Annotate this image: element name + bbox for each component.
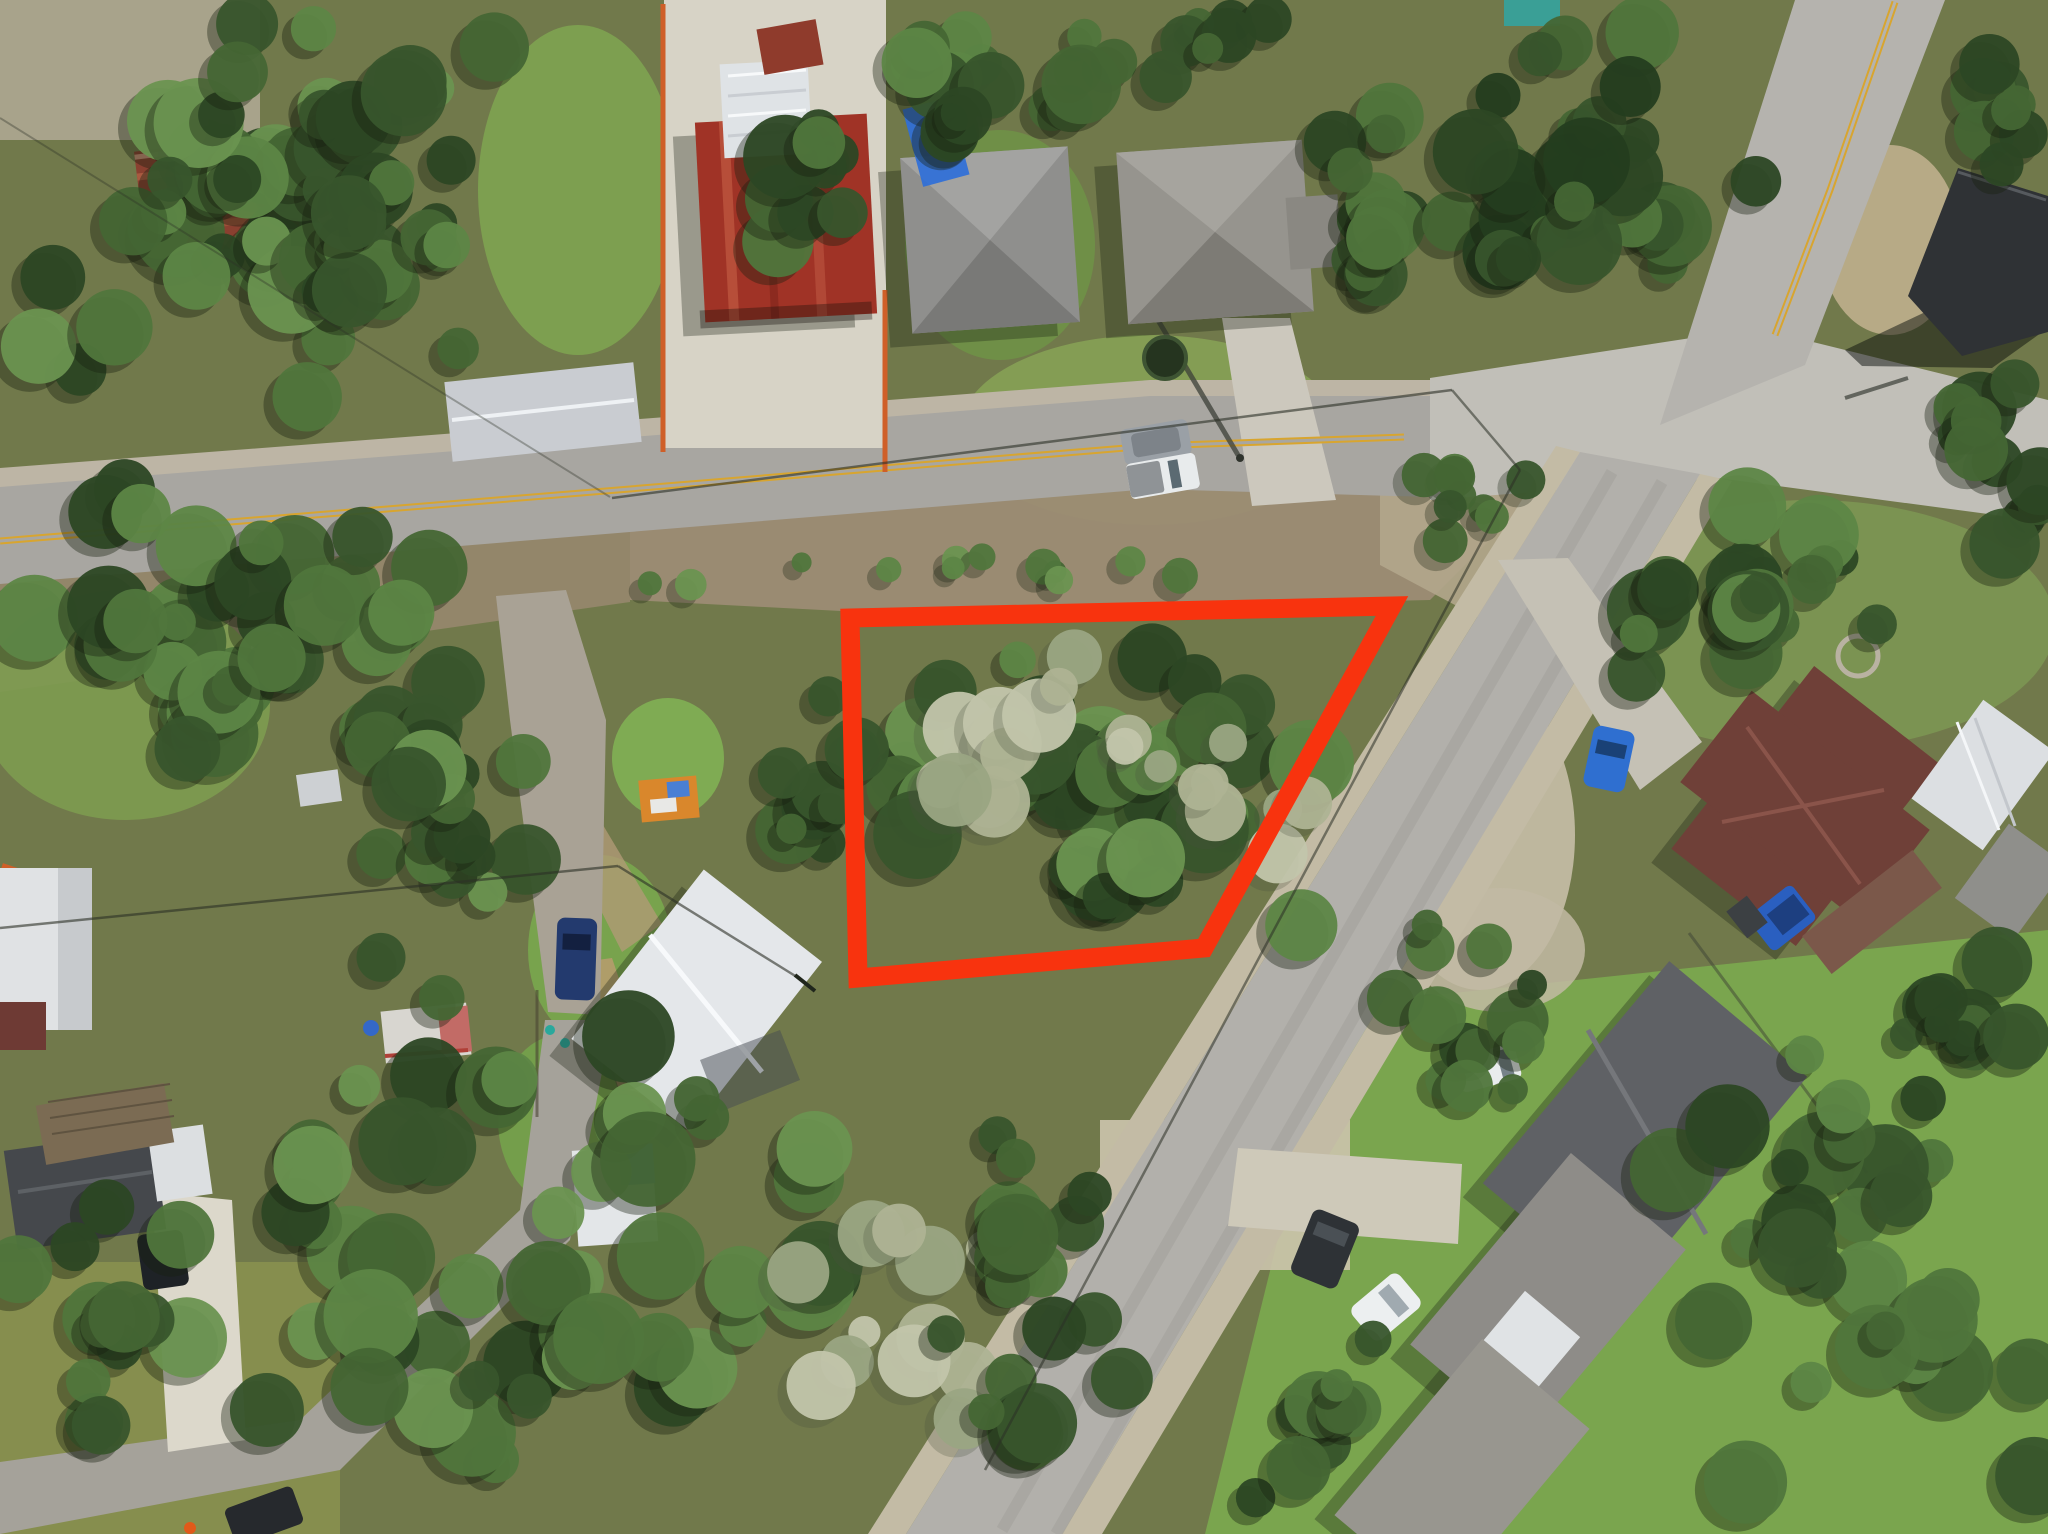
trees-west-of-wash <box>357 933 406 982</box>
trees-west-of-wash <box>371 747 446 822</box>
trees-south-of-lot <box>927 1315 964 1352</box>
trees-bottom-strip <box>600 1112 695 1207</box>
bushes-road-band <box>1162 558 1198 594</box>
trees-topleft <box>76 289 152 365</box>
trees-below-junction <box>1787 555 1836 604</box>
forest-topright <box>1518 32 1563 77</box>
trees-left-center <box>239 521 284 566</box>
tree-over-redhouse <box>817 187 868 238</box>
trees-below-junction <box>1637 559 1699 621</box>
lot-dead-trees-east <box>1209 724 1247 762</box>
bushes-junction-west <box>1402 453 1446 497</box>
blue-bin <box>363 1020 379 1036</box>
trees-road-east-bottom <box>1355 1321 1392 1358</box>
trees-bottom-right <box>1758 1208 1837 1287</box>
trees-topleft <box>1 309 76 384</box>
trees-bottom-strip <box>273 1126 352 1205</box>
trees-left-of-redhouse <box>423 222 470 269</box>
darkblue-car-left <box>555 917 598 1000</box>
trees-bottomleft-edge <box>72 1396 131 1455</box>
trees-left-of-redhouse <box>361 50 447 136</box>
bushes-junction-west <box>1506 460 1545 499</box>
trees-left-of-redhouse <box>311 175 387 251</box>
trees-topleft <box>147 157 192 202</box>
trees-bottom-right <box>1866 1312 1904 1350</box>
lot-dead-trees-west <box>1040 668 1078 706</box>
dead-trees-bottom <box>787 1351 856 1420</box>
trees-bottom-strip <box>777 1111 853 1187</box>
trees-right-of-maroon <box>1924 1008 1959 1043</box>
trampoline <box>1144 337 1186 379</box>
teal-chair-1 <box>545 1025 555 1035</box>
bushes-junction-west <box>1434 490 1467 523</box>
trees-below-junction <box>1708 467 1786 545</box>
trees-left-center <box>332 507 392 567</box>
forest-topright <box>1496 236 1541 281</box>
bushes-road-band <box>675 569 707 601</box>
lot-dead-trees-west <box>918 753 992 827</box>
dead-trees-bottom <box>767 1241 829 1303</box>
trees-left-center <box>284 565 365 646</box>
trees-bottom-strip <box>532 1187 584 1239</box>
bushes-road-band <box>638 571 662 595</box>
trees-top-center <box>941 95 977 131</box>
trees-left-center <box>368 580 434 646</box>
trees-south-of-lot <box>1091 1348 1153 1410</box>
trees-topright-edge <box>1991 90 2031 130</box>
left-edge-building-shade <box>58 868 92 1030</box>
trees-right-of-grayhouses <box>1366 114 1405 153</box>
trees-road-east-bottom <box>1267 1436 1331 1500</box>
bushes-road-band <box>792 552 812 572</box>
forest-topright <box>1554 182 1594 222</box>
bushes-road-band <box>942 557 965 580</box>
trees-left-center <box>111 484 170 543</box>
forest-topright <box>1600 56 1661 117</box>
trees-bottom-strip <box>507 1374 552 1419</box>
trees-south-of-lot <box>996 1139 1035 1178</box>
trees-bottom-right <box>1870 1164 1933 1227</box>
trees-mid-right <box>1466 924 1512 970</box>
white-pickup-bed <box>1126 460 1165 497</box>
trees-below-junction <box>1740 572 1782 614</box>
trees-bottomleft-edge <box>51 1222 100 1271</box>
trees-below-junction <box>1857 604 1897 644</box>
trees-topright-edge <box>1980 142 2024 186</box>
trees-right-of-maroon <box>1962 927 2033 998</box>
bushes-junction-west <box>1475 500 1509 534</box>
lot-canopy <box>999 642 1036 679</box>
lot-dead-trees-east <box>1144 750 1177 783</box>
trees-left-of-redhouse <box>437 328 479 370</box>
trees-mid-right <box>1441 1060 1493 1112</box>
trees-south-of-lot <box>1022 1297 1086 1361</box>
trees-mid-right <box>1408 986 1466 1044</box>
trees-top-center <box>1042 45 1122 125</box>
trees-south-of-lot <box>977 1194 1058 1275</box>
trees-mid-right <box>1412 910 1443 941</box>
trees-topleft <box>291 6 336 51</box>
trees-east-of-garden <box>776 814 806 844</box>
bushes-road-band <box>1045 566 1073 594</box>
aerial-photo-canvas <box>0 0 2048 1534</box>
trees-bottom-strip <box>553 1293 644 1384</box>
orange-cone <box>184 1522 196 1534</box>
trees-south-of-lot <box>968 1394 1004 1430</box>
tree-over-redhouse <box>793 116 846 169</box>
trees-below-junction <box>1620 615 1658 653</box>
trees-left-center <box>238 624 306 692</box>
trees-bottom-strip <box>617 1212 705 1300</box>
trees-topleft <box>460 12 529 81</box>
trees-right-of-grayhouses <box>1346 206 1410 270</box>
trees-topleft <box>20 245 85 310</box>
trees-left-center <box>103 589 167 653</box>
trees-bottom-right <box>1785 1035 1824 1074</box>
trees-bottom-right <box>1791 1362 1832 1403</box>
aerial-photo <box>0 0 2048 1534</box>
lot-dead-trees-east <box>1178 764 1224 810</box>
small-shed-2 <box>296 769 342 807</box>
lot-canopy <box>1106 818 1185 897</box>
trees-left-of-redhouse <box>427 136 476 185</box>
bushes-road-band <box>1115 546 1145 576</box>
trees-left-center <box>155 716 221 782</box>
trees-bottom-strip <box>338 1065 380 1107</box>
trees-topleft <box>163 242 231 310</box>
darkblue-car-glass <box>562 934 591 951</box>
trees-mid-right <box>1498 1074 1528 1104</box>
trees-top-center <box>882 28 952 98</box>
trees-south-of-lot <box>1067 1172 1111 1216</box>
trees-bottom-right <box>1772 1149 1809 1186</box>
dead-trees-bottom <box>872 1204 926 1258</box>
trees-bottom-strip <box>331 1348 409 1426</box>
trees-east-of-garden <box>758 747 809 798</box>
trees-bottom-right <box>1704 1441 1787 1524</box>
trees-topright-edge <box>1959 34 2019 94</box>
forest-topright <box>1731 156 1782 207</box>
trees-bottom-strip <box>459 1361 500 1402</box>
trees-bottom-right <box>1816 1080 1870 1134</box>
orange-structure-white-bit <box>650 797 677 813</box>
trees-bottom-right <box>1675 1283 1752 1360</box>
trees-west-of-wash <box>419 975 465 1021</box>
trees-mid-right <box>1517 970 1547 1000</box>
forest-topright <box>1433 109 1519 195</box>
left-edge-darkred-roof <box>0 1002 46 1050</box>
trees-bottom-strip <box>582 990 675 1083</box>
trees-bottom-strip <box>481 1051 537 1107</box>
trees-bottom-strip <box>439 1254 504 1319</box>
trees-top-mid <box>1192 33 1223 64</box>
trees-right-edge-mid <box>1990 359 2039 408</box>
trees-bottom-strip <box>358 1097 446 1185</box>
trees-right-edge-mid <box>1944 417 2008 481</box>
lot-dead-trees-west <box>1106 728 1143 765</box>
orange-structure-blue-bit <box>667 780 690 798</box>
bushes-road-band <box>969 543 996 570</box>
trees-bottom-strip <box>674 1076 719 1121</box>
trees-right-of-maroon <box>1900 1076 1945 1121</box>
trees-road-east-bottom <box>1321 1369 1354 1402</box>
trees-mid-right <box>1502 1021 1545 1064</box>
trees-bottom-strip <box>230 1373 304 1447</box>
bushes-road-band <box>876 557 901 582</box>
trees-topleft <box>207 42 268 103</box>
trees-topleft <box>273 362 342 431</box>
trees-west-of-wash <box>496 734 551 789</box>
trees-bottomleft-edge <box>147 1201 215 1269</box>
utility-pole <box>1236 454 1244 462</box>
trees-bottomleft-edge <box>88 1281 159 1352</box>
trees-bottom-right <box>1685 1084 1769 1168</box>
trees-right-of-maroon <box>1983 1004 2048 1070</box>
trees-left-of-redhouse <box>312 252 387 327</box>
